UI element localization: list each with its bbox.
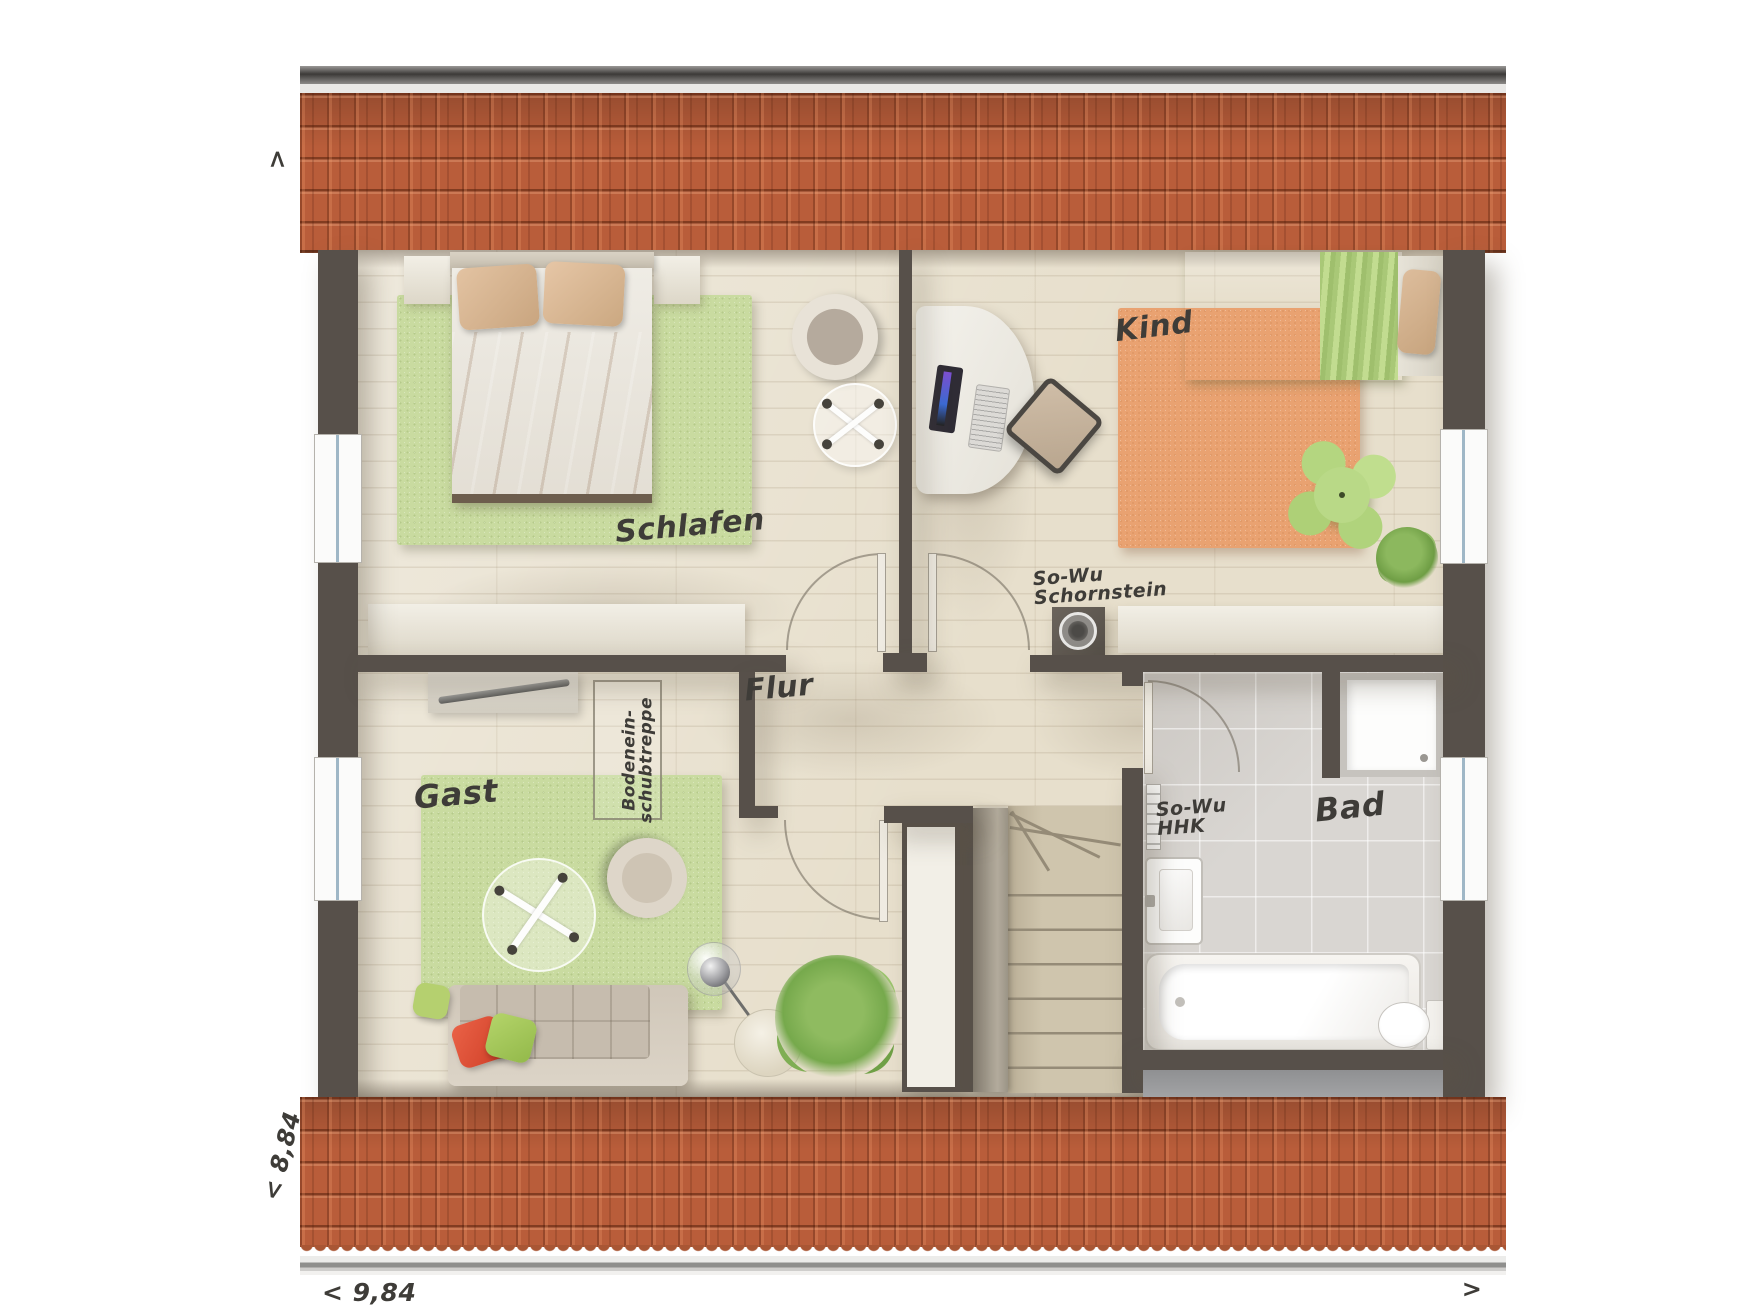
annotation-attic-line2: schubtreppe [639,697,656,823]
lamp-chrome [700,957,730,987]
bed-pillow [456,263,540,330]
wall-exterior-left [318,250,358,1097]
glass-table [813,383,897,467]
schlafen-door-leaf [877,553,886,652]
kind-bed-blanket [1320,252,1398,380]
floor-cushion [411,981,451,1021]
kind-shelf [1118,606,1443,653]
north-arrow-icon: > [263,149,291,170]
window-kind [1440,429,1488,564]
chimney [1052,607,1105,657]
room-label-gast: Gast [412,771,499,816]
wall-exterior-right [1443,250,1485,1097]
wall-w2-bad [1122,768,1143,1093]
wall-shower-stub [1322,672,1340,778]
chimney-flue [1068,621,1088,641]
kind-pillow [1396,269,1441,356]
window-gast [314,757,362,901]
wall-w1 [899,250,912,655]
bathtub [1145,953,1421,1051]
table-leg [508,875,565,953]
window-glass [336,435,339,562]
kind-door-leaf [928,553,937,652]
bad-door-leaf [1144,682,1153,774]
window-schlafen [314,434,362,563]
dimension-width: < 9,84 [322,1278,416,1307]
schlafen-sideboard [368,604,745,655]
stair-treads [1008,862,1122,1093]
wall-w3-stub [739,806,778,818]
window-glass [1462,758,1465,900]
floorplan-canvas: Schlafen Kind Gast Flur Bad So-Wu Schorn… [0,0,1754,1315]
bad-south-gray [1143,1070,1443,1097]
sink-faucet [1145,895,1155,907]
gast-fern [775,955,900,1080]
room-label-flur: Flur [743,668,815,709]
gast-door-leaf [879,820,888,922]
tub-basin [1159,964,1409,1040]
bed-footer [452,494,652,503]
shower [1340,673,1443,777]
wall-t-stub [883,653,927,672]
wall-gast-cap [884,806,973,823]
gast-glass-table [482,858,596,972]
monitor-screen [936,371,951,426]
sink [1145,857,1203,945]
stair-balustrade [973,808,1008,1092]
window-bad [1440,757,1488,901]
window-glass [1462,430,1465,563]
wall-bad-south [1127,1050,1443,1070]
window-glass [336,758,339,900]
bed-pillow [542,261,625,327]
gutter [300,1256,1506,1275]
tub-drain [1175,997,1185,1007]
annotation-attic-ladder: Bodenein- schubtreppe [622,697,657,823]
annotation-hhk: So-Wu HHK [1155,796,1228,840]
sink-basin [1159,869,1193,931]
roof-ridge-top [300,66,1506,84]
wall-h2 [1030,655,1443,672]
wall-h1 [358,655,786,672]
room-label-bad: Bad [1313,784,1387,829]
toilet-bowl [1378,1002,1430,1048]
shower-drain [1420,754,1428,762]
wall-h2-stub [1122,672,1143,686]
kind-plant [1376,527,1438,589]
nightstand-left [404,256,450,304]
bed-duvet [452,332,652,498]
roof-north [300,93,1506,253]
pouf-button [1339,492,1345,498]
roof-south [300,1097,1506,1247]
nightstand-right [654,256,700,304]
stair-void [902,822,960,1092]
roof-south-edge [300,1245,1506,1256]
width-arrow-icon: > [1462,1275,1483,1303]
